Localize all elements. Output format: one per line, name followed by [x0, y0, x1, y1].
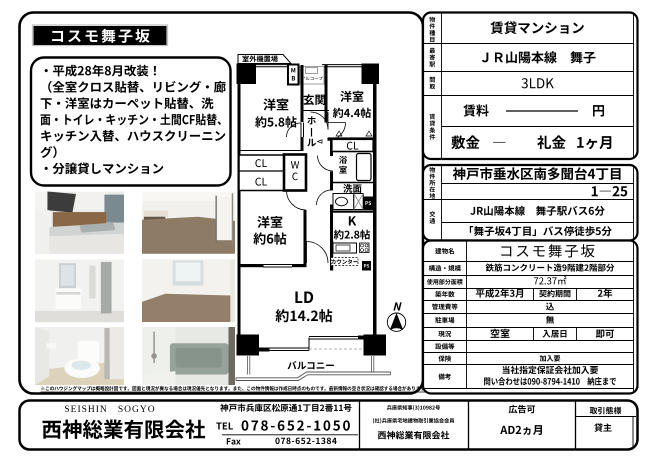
svg-text:SEISHIN SOGYO: SEISHIN SOGYO — [64, 405, 155, 415]
